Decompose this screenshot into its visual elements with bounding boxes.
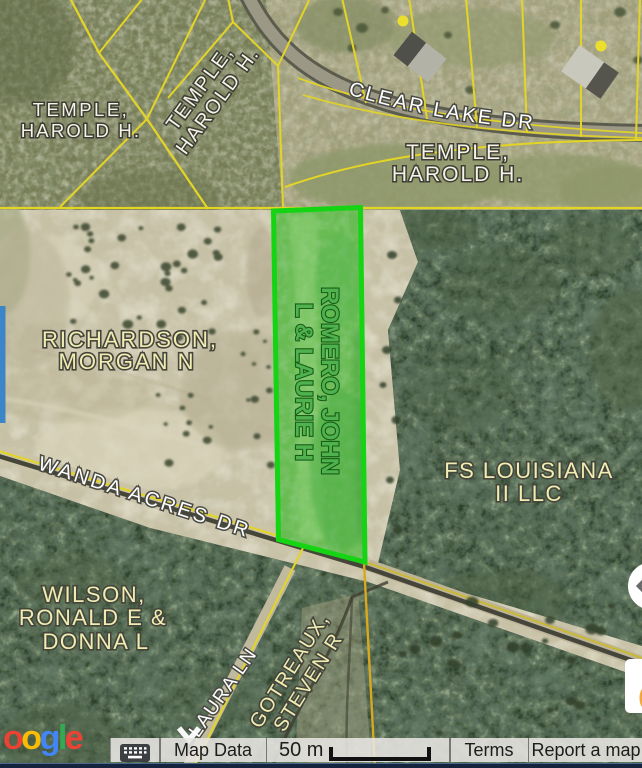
svg-text:DONNA L: DONNA L [42, 629, 149, 654]
svg-text:HAROLD H.: HAROLD H. [392, 163, 524, 186]
svg-text:RONALD E &: RONALD E & [19, 605, 167, 630]
svg-text:HAROLD H.: HAROLD H. [21, 120, 142, 141]
svg-text:MORGAN N: MORGAN N [59, 349, 196, 374]
svg-text:WILSON,: WILSON, [42, 582, 145, 607]
svg-text:TEMPLE,: TEMPLE, [33, 99, 130, 120]
svg-text:FS LOUISIANA: FS LOUISIANA [444, 458, 614, 483]
svg-text:TEMPLE,: TEMPLE, [406, 141, 510, 164]
svg-text:II LLC: II LLC [495, 481, 563, 506]
svg-text:ROMERO, JOHN: ROMERO, JOHN [316, 287, 343, 475]
svg-text:L & LAURIE H: L & LAURIE H [290, 303, 317, 461]
